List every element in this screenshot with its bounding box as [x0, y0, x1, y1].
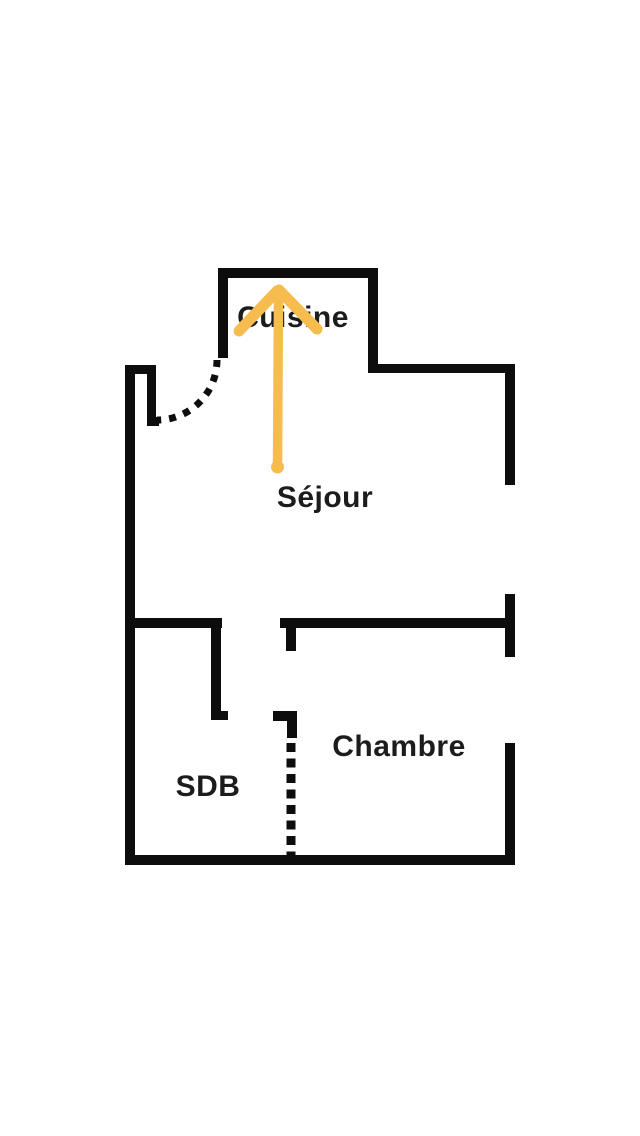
arrow-stem: [278, 293, 279, 466]
wall-cuisine-right: [368, 268, 378, 373]
wall-right-upper: [505, 364, 515, 485]
room-label-sdb: SDB: [176, 770, 241, 803]
wall-divider-left: [135, 618, 222, 628]
wall-cuisine-top: [218, 268, 378, 278]
wall-top-right: [368, 364, 515, 373]
wall-chambre-stub: [286, 628, 296, 651]
wall-entry-jamb: [147, 365, 156, 426]
arrow-up-icon: [239, 290, 317, 474]
wall-left-outer: [125, 365, 135, 865]
wall-right-lower: [505, 743, 515, 865]
door-swing-arc: [157, 360, 217, 420]
wall-bottom: [125, 855, 515, 865]
room-labels: Cuisine Séjour SDB Chambre: [176, 301, 466, 803]
wall-cuisine-left: [218, 268, 228, 358]
floor-plan-screen: Cuisine Séjour SDB Chambre: [0, 0, 640, 1136]
wall-sdb-partition: [211, 628, 221, 711]
wall-divider-right: [280, 618, 515, 628]
room-label-sejour: Séjour: [277, 481, 373, 514]
wall-sdb-partition-foot: [211, 711, 228, 720]
arrow-tail-dot: [271, 461, 284, 474]
floor-plan-drawing: Cuisine Séjour SDB Chambre: [0, 0, 640, 1136]
wall-lstub-vertical: [287, 711, 297, 738]
room-label-chambre: Chambre: [332, 730, 466, 763]
